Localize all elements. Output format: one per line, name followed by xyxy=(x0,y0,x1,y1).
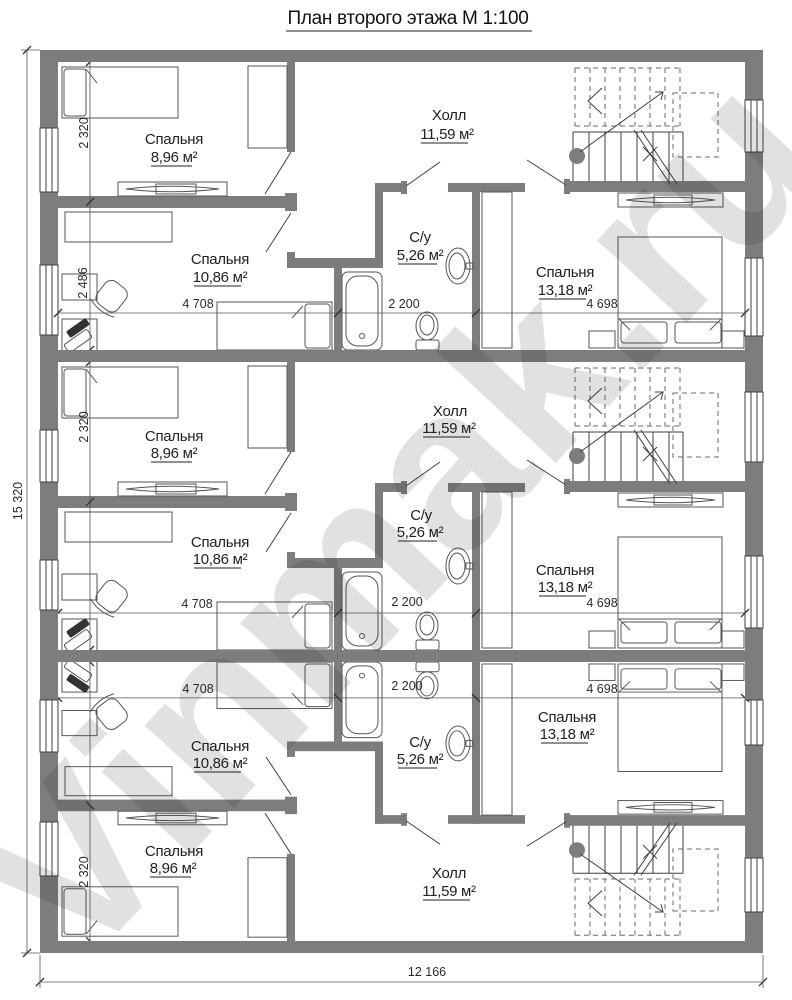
dim-label: 4 698 xyxy=(586,682,617,696)
window xyxy=(745,556,763,628)
room-area: 8,96 м² xyxy=(151,149,198,166)
room-area: 13,18 м² xyxy=(538,579,593,596)
room-area: 10,86 м² xyxy=(193,269,248,286)
dim-label: 2 320 xyxy=(77,117,91,148)
window xyxy=(40,560,58,610)
dim-label: 4 708 xyxy=(182,297,213,311)
room-name: Спальня xyxy=(538,709,596,726)
room-name: Холл xyxy=(432,865,466,882)
room-area: 5,26 м² xyxy=(397,751,444,768)
dim-label: 2 320 xyxy=(77,411,91,442)
room-name: Холл xyxy=(432,107,466,124)
room-area: 5,26 м² xyxy=(397,247,444,264)
page-title: План второго этажа М 1:100 xyxy=(287,8,528,29)
room-area: 13,18 м² xyxy=(540,726,595,743)
room-area: 11,59 м² xyxy=(422,883,476,900)
room-name: Спальня xyxy=(145,131,203,148)
dim-label: 4 698 xyxy=(586,596,617,610)
room-area: 8,96 м² xyxy=(151,445,198,462)
window xyxy=(745,858,763,912)
dim-label: 2 486 xyxy=(76,267,90,298)
room-name: Спальня xyxy=(536,562,594,579)
room-name: С/у xyxy=(409,229,431,246)
dim-label-total-width: 12 166 xyxy=(408,965,446,979)
floor-plan-drawing: План второго этажа М 1:100 xyxy=(0,0,792,1000)
window xyxy=(40,265,58,335)
room-name: С/у xyxy=(409,734,431,751)
room-name: Спальня xyxy=(191,251,249,268)
watermark: Vinmak.ru xyxy=(0,25,792,1000)
window xyxy=(745,392,763,462)
dim-label-total-height: 15 320 xyxy=(11,482,25,520)
window xyxy=(40,128,58,192)
room-area: 11,59 м² xyxy=(420,126,474,143)
room-name: Спальня xyxy=(145,428,203,445)
floor-plan-page: План второго этажа М 1:100 xyxy=(0,0,792,1000)
window xyxy=(40,430,58,482)
window xyxy=(745,700,763,745)
